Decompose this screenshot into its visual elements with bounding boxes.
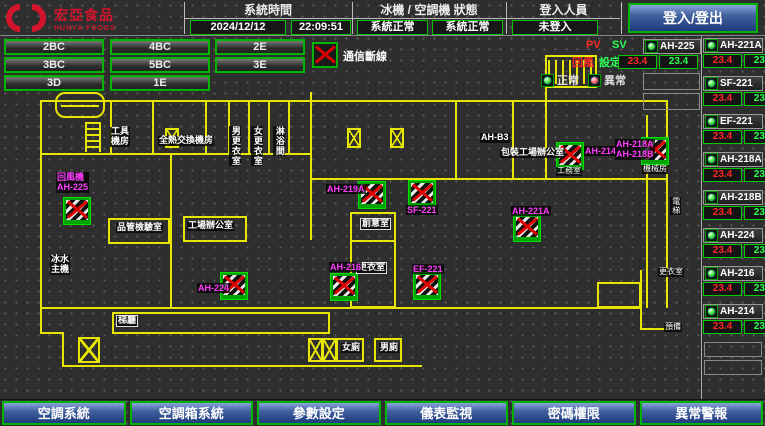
floor-button-5BC[interactable]: 5BC (110, 57, 210, 73)
logo-name: 宏亞食品 (54, 5, 116, 25)
room-label: 機械房 (642, 165, 668, 174)
sv-value[interactable]: 23.4 (744, 206, 765, 220)
shaft-icon (78, 337, 100, 363)
equipment-label: AH-224 (197, 283, 230, 293)
room-label: 梯廳 (116, 315, 138, 327)
floor-button-2E[interactable]: 2E (215, 39, 305, 55)
login-user-value: 未登入 (512, 20, 598, 35)
equipment-label: SF-221 (406, 205, 438, 215)
header: 宏亞食品 HUNYA FOODS 系統時間 2024/12/12 22:09:5… (0, 0, 765, 36)
unit-name: SF-221 (720, 78, 753, 89)
wall-segment (40, 100, 42, 332)
unit-row-EF-221[interactable]: EF-221 (703, 114, 763, 129)
hmi-screen: 宏亞食品 HUNYA FOODS 系統時間 2024/12/12 22:09:5… (0, 0, 765, 426)
divider (185, 18, 620, 19)
sv-value[interactable]: 23.4 (744, 168, 765, 182)
equipment-label: 回風機 AH-225 (56, 172, 89, 193)
status-led-icon (705, 39, 718, 52)
empty-slot (643, 73, 700, 90)
room-label: 包裝工場辦公室 (500, 148, 565, 158)
pv-value: 23.4 (703, 168, 742, 182)
ahu-status-value: 系統正常 (432, 20, 503, 35)
sv-value[interactable]: 23.4 (744, 244, 765, 258)
pv-value: 23.4 (618, 55, 657, 69)
empty-slot (643, 93, 700, 110)
nav-param-settings[interactable]: 參數設定 (257, 401, 381, 425)
comm-fail-marker[interactable] (408, 180, 436, 208)
room-label: 冰水 主機 (50, 255, 70, 275)
pv-value: 23.4 (703, 206, 742, 220)
floor-button-1E[interactable]: 1E (110, 75, 210, 91)
shaft-icon (390, 128, 404, 148)
unit-name: AH-214 (720, 306, 754, 317)
unit-row-AH-218B[interactable]: AH-218B (703, 190, 763, 205)
comm-fail-icon (312, 42, 338, 68)
room-outline (112, 312, 330, 334)
room-label: 男更衣室 (229, 126, 241, 166)
sv-value[interactable]: 23.4 (744, 282, 765, 296)
sv-header: SV (612, 39, 627, 51)
room-label: AH-B3 (480, 133, 510, 143)
unit-name: AH-224 (720, 230, 754, 241)
room-label: 工具 機房 (110, 127, 130, 147)
comm-fail-marker[interactable] (413, 272, 441, 300)
comm-fail-marker[interactable] (63, 197, 91, 225)
pv-value: 23.4 (703, 130, 742, 144)
status-led-icon (705, 115, 718, 128)
company-logo: 宏亞食品 HUNYA FOODS (6, 2, 181, 34)
equipment-label: AH-218A AH-218B (615, 139, 655, 160)
room-label: 工場辦公室 (187, 221, 234, 231)
wall-segment (170, 153, 172, 309)
equipment-label: AH-214 (584, 146, 617, 156)
room-label: 更衣室 (658, 268, 684, 277)
comm-fail-x-icon (416, 275, 438, 295)
empty-slot (704, 360, 762, 375)
pv-value: 23.4 (703, 244, 742, 258)
wall-segment (268, 100, 270, 153)
sv-value[interactable]: 23.4 (659, 55, 698, 69)
login-title: 登入人員 (508, 3, 619, 17)
room-label: 工務室 (556, 167, 582, 176)
sv-value[interactable]: 23.4 (744, 54, 765, 68)
shaft-icon (308, 338, 323, 362)
shaft-icon (322, 338, 337, 362)
nav-ac-system[interactable]: 空調系統 (2, 401, 126, 425)
shaft-icon (347, 128, 361, 148)
status-led-icon (705, 77, 718, 90)
empty-slot (704, 342, 762, 357)
unit-row-AH-218A[interactable]: AH-218A (703, 152, 763, 167)
wall-segment (666, 100, 668, 308)
floor-button-4BC[interactable]: 4BC (110, 39, 210, 55)
floor-button-3E[interactable]: 3E (215, 57, 305, 73)
pv-header: PV (586, 39, 601, 51)
wall-segment (62, 332, 64, 367)
wall-segment (310, 92, 312, 240)
wall-segment (40, 307, 640, 309)
room-label: 電梯 (670, 197, 681, 215)
floor-button-3BC[interactable]: 3BC (4, 57, 104, 73)
normal-led-icon (541, 74, 554, 87)
login-logout-button[interactable]: 登入/登出 (628, 3, 758, 33)
pv-value: 23.4 (703, 282, 742, 296)
unit-name: AH-225 (660, 41, 694, 52)
system-time-title: 系統時間 (186, 3, 350, 17)
wall-segment (40, 153, 312, 155)
room-label: 全熱交換機房 (158, 136, 214, 146)
legend-abnormal: 異常 (588, 72, 626, 88)
abnormal-led-icon (588, 74, 601, 87)
room-label: 女更衣室 (251, 126, 263, 166)
bottom-nav: 空調系統空調箱系統參數設定儀表監視密碼權限異常警報 (0, 399, 765, 426)
logo-icon (6, 3, 50, 33)
status-led-icon (645, 40, 658, 53)
main-area: 回風機 AH-225AH-219ASF-221AH-214AH-218A AH-… (0, 36, 765, 399)
room-label: 創意室 (360, 218, 391, 230)
wall-segment (248, 100, 250, 153)
status-led-icon (705, 305, 718, 318)
unit-name: AH-218A (720, 154, 762, 165)
equipment-label: EF-221 (412, 264, 444, 274)
pv-value: 23.4 (703, 54, 742, 68)
unit-name: EF-221 (720, 116, 753, 127)
status-led-icon (705, 153, 718, 166)
floor-button-3D[interactable]: 3D (4, 75, 104, 91)
comm-fail-x-icon (333, 276, 355, 296)
legend-abnormal-label: 異常 (604, 72, 626, 88)
floor-plan: 回風機 AH-225AH-219ASF-221AH-214AH-218A AH-… (0, 36, 702, 399)
unit-row-AH-221A[interactable]: AH-221A (703, 38, 763, 53)
room-label: 男廁 (379, 343, 399, 353)
wall-segment (512, 100, 514, 178)
pv-value: 23.4 (703, 320, 742, 334)
nav-alarm[interactable]: 異常警報 (640, 401, 764, 425)
divider (621, 2, 622, 34)
room-label: 品管檢驗室 (116, 223, 163, 233)
sv-value[interactable]: 23.4 (744, 320, 765, 334)
room-label: 女廁 (341, 343, 361, 353)
comm-fail-marker[interactable] (330, 273, 358, 301)
sv-value[interactable]: 23.4 (744, 130, 765, 144)
stairs-icon (85, 122, 101, 152)
equipment-label: AH-216 (329, 262, 362, 272)
machine-status-title: 冰機 / 空調機 狀態 (354, 3, 504, 17)
wall-segment (40, 332, 62, 334)
comm-fail-x-icon (516, 217, 538, 237)
comm-fail-x-icon (411, 183, 433, 203)
unit-row-AH-225[interactable]: AH-225 (643, 39, 701, 54)
status-led-icon (705, 267, 718, 280)
wall-segment (152, 100, 154, 153)
room-label: 淋浴間 (273, 126, 285, 156)
system-date-value: 2024/12/12 (190, 20, 286, 35)
unit-name: AH-221A (720, 40, 762, 51)
system-time-value: 22:09:51 (291, 20, 351, 35)
unit-row-AH-216[interactable]: AH-216 (703, 266, 763, 281)
status-led-icon (705, 191, 718, 204)
comm-fail-marker[interactable] (513, 214, 541, 242)
divider (701, 36, 702, 399)
wall-segment (62, 365, 422, 367)
status-led-icon (705, 229, 718, 242)
room-label: 預備 (664, 323, 682, 332)
stairs-icon (55, 92, 105, 118)
legend-normal-label: 正常 (557, 72, 579, 88)
unit-row-AH-224[interactable]: AH-224 (703, 228, 763, 243)
floor-button-2BC[interactable]: 2BC (4, 39, 104, 55)
room-outline (597, 282, 641, 308)
wall-segment (312, 178, 668, 180)
comm-fail-label: 通信斷線 (343, 48, 387, 64)
nav-ahu-system[interactable]: 空調箱系統 (130, 401, 254, 425)
wall-segment (40, 100, 668, 102)
wall-segment (455, 100, 457, 178)
sv-value[interactable]: 23.4 (744, 92, 765, 106)
unit-name: AH-218B (720, 192, 762, 203)
nav-password[interactable]: 密碼權限 (512, 401, 636, 425)
legend-normal: 正常 (541, 72, 579, 88)
nav-meter-monitor[interactable]: 儀表監視 (385, 401, 509, 425)
unit-row-AH-214[interactable]: AH-214 (703, 304, 763, 319)
logo-subtitle: HUNYA FOODS (54, 25, 116, 32)
pv-value: 23.4 (703, 92, 742, 106)
unit-row-SF-221[interactable]: SF-221 (703, 76, 763, 91)
comm-fail-x-icon (66, 200, 88, 220)
chiller-status-value: 系統正常 (357, 20, 428, 35)
wall-segment (288, 100, 290, 153)
equipment-label: AH-219A (326, 184, 366, 194)
unit-name: AH-216 (720, 268, 754, 279)
equipment-label: AH-221A (511, 206, 551, 216)
pv-name: 回風 (572, 54, 594, 70)
